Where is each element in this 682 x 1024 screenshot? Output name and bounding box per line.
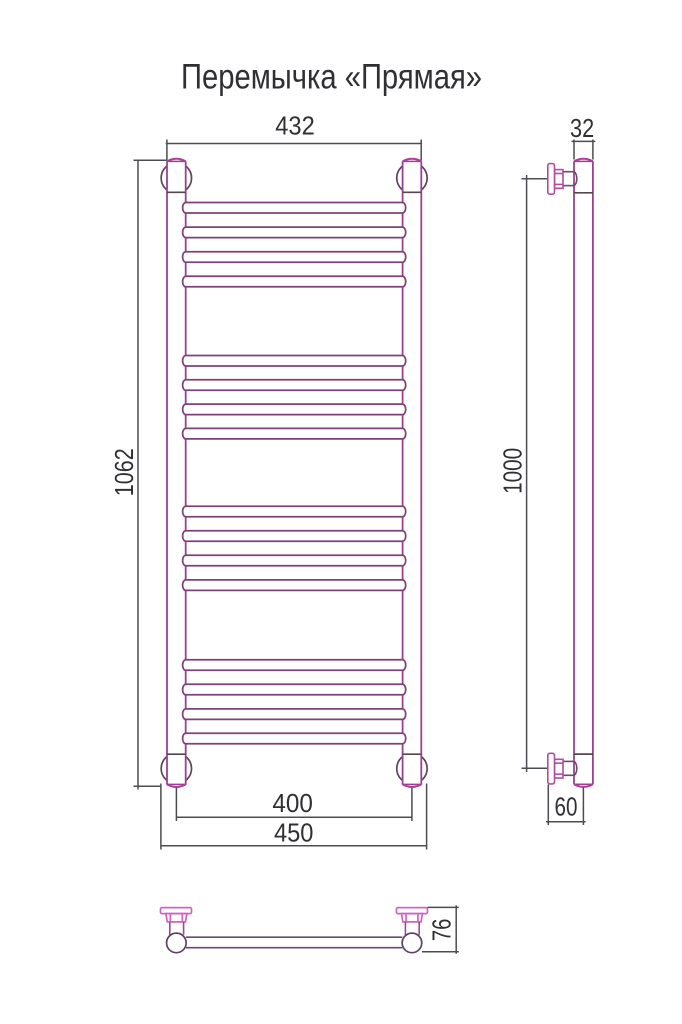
svg-text:1000: 1000 — [497, 448, 527, 494]
svg-text:450: 450 — [274, 819, 314, 847]
svg-text:1062: 1062 — [109, 448, 139, 496]
svg-text:Перемычка «Прямая»: Перемычка «Прямая» — [181, 57, 482, 96]
svg-text:432: 432 — [275, 113, 315, 141]
svg-text:400: 400 — [272, 790, 313, 818]
svg-text:76: 76 — [427, 919, 457, 942]
svg-text:60: 60 — [555, 794, 578, 822]
svg-text:32: 32 — [570, 115, 594, 143]
